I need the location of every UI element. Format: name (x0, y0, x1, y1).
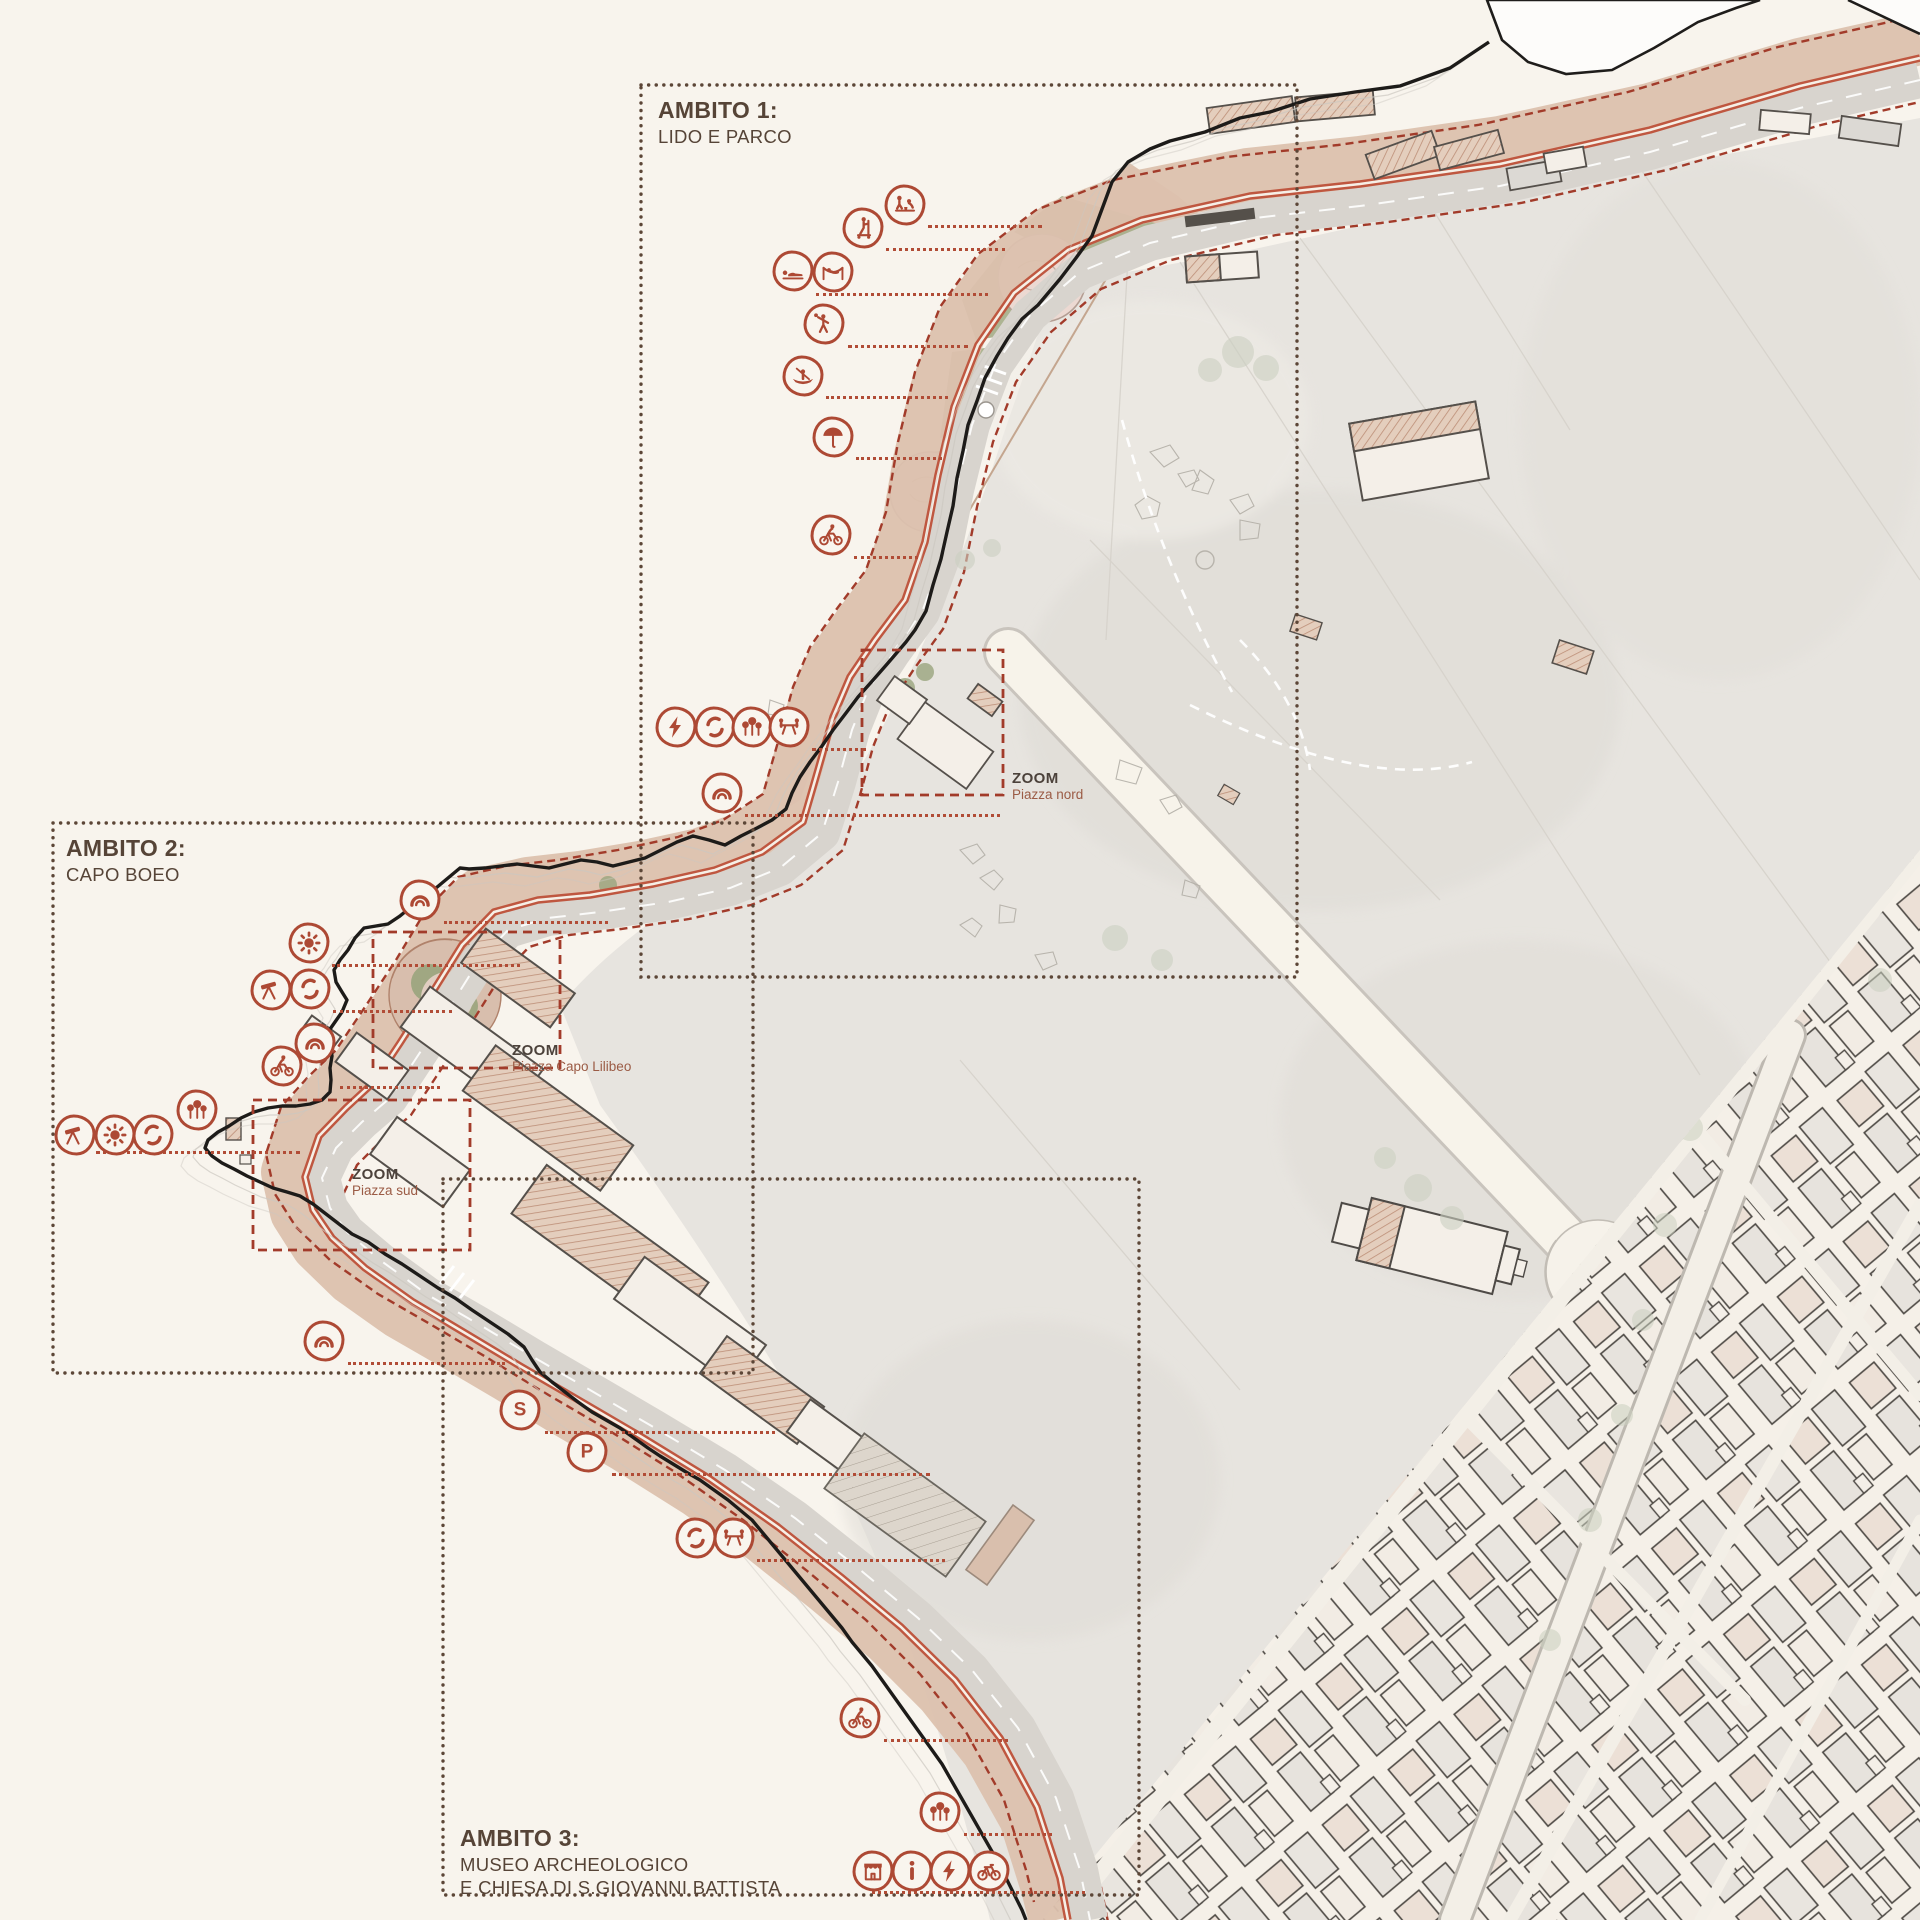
zoom-callout-piazza-sud: ZOOM Piazza sud (352, 1166, 418, 1199)
icon-shuttle-stop: S (500, 1390, 541, 1431)
zoom-callout-title: ZOOM (512, 1042, 631, 1059)
zoom-callout-title: ZOOM (352, 1166, 418, 1183)
leader-line (886, 248, 1005, 251)
icon-panoramic-arch (304, 1321, 345, 1362)
icon-parking: P (567, 1432, 608, 1473)
icon-sun-solarium (95, 1115, 136, 1156)
zoom-callout-name: Piazza Capo Lilibeo (512, 1059, 631, 1075)
icon-loop-path (133, 1115, 174, 1156)
icon-panoramic-arch (400, 880, 441, 921)
icon-beach-games (804, 304, 845, 345)
leader-line (348, 1362, 505, 1365)
icon-canoe (783, 356, 824, 397)
leader-line (444, 921, 608, 924)
zone-title: AMBITO 1: (658, 96, 792, 125)
icon-sunbathing (773, 251, 814, 292)
icon-park-trees (177, 1090, 218, 1131)
leader-line (848, 345, 968, 348)
zone-label-ambito-2: AMBITO 2: CAPO BOEO (66, 834, 186, 886)
leader-line (332, 964, 520, 967)
icon-cycling (262, 1046, 303, 1087)
leader-line (854, 556, 918, 559)
leader-line (884, 1739, 1008, 1742)
icon-telescope-viewpoint (251, 970, 292, 1011)
zoom-callout-piazza-nord: ZOOM Piazza nord (1012, 770, 1083, 803)
zone-subtitle-2: E CHIESA DI S.GIOVANNI BATTISTA (460, 1876, 781, 1899)
leader-line (856, 457, 942, 460)
icon-hammock (813, 252, 854, 293)
icon-picnic-area (769, 707, 810, 748)
zone-title: AMBITO 2: (66, 834, 186, 863)
icon-picnic-area (714, 1518, 755, 1559)
icon-loop-path (695, 707, 736, 748)
icon-electric-charge (656, 707, 697, 748)
icon-park-trees (920, 1792, 961, 1833)
zone-subtitle: MUSEO ARCHEOLOGICO (460, 1853, 781, 1876)
leader-line (812, 748, 866, 751)
leader-line (964, 1833, 1052, 1836)
basemap (0, 0, 1920, 1920)
zone-subtitle: LIDO E PARCO (658, 125, 792, 148)
leader-line (872, 1891, 1085, 1894)
icon-bike-rental (969, 1851, 1010, 1892)
icon-electric-charge (930, 1851, 971, 1892)
icon-sun-solarium (289, 923, 330, 964)
zoom-callout-name: Piazza nord (1012, 787, 1083, 803)
icon-kick-scooter (843, 208, 884, 249)
icon-beach-umbrella (813, 417, 854, 458)
icon-panoramic-arch (702, 773, 743, 814)
leader-line (757, 1559, 945, 1562)
icon-loop-path (676, 1518, 717, 1559)
leader-line (816, 293, 988, 296)
masterplan-canvas: SP AMBITO 1: LIDO E PARCO AMBITO 2: CAPO… (0, 0, 1920, 1920)
leader-line (745, 814, 1000, 817)
leader-line (612, 1473, 930, 1476)
zoom-callout-name: Piazza sud (352, 1183, 418, 1199)
leader-line (333, 1010, 452, 1013)
zoom-callout-piazza-capo-lilibeo: ZOOM Piazza Capo Lilibeo (512, 1042, 631, 1075)
leader-line (340, 1086, 440, 1089)
icon-telescope-viewpoint (55, 1115, 96, 1156)
icon-sandcastle-play (885, 185, 926, 226)
zone-title: AMBITO 3: (460, 1824, 781, 1853)
leader-line (928, 225, 1042, 228)
zone-label-ambito-1: AMBITO 1: LIDO E PARCO (658, 96, 792, 148)
icon-cycling (811, 515, 852, 556)
icon-cycling (840, 1698, 881, 1739)
zoom-callout-title: ZOOM (1012, 770, 1083, 787)
leader-line (826, 396, 948, 399)
zone-label-ambito-3: AMBITO 3: MUSEO ARCHEOLOGICO E CHIESA DI… (460, 1824, 781, 1899)
icon-kiosk (853, 1851, 894, 1892)
icon-info-point (892, 1851, 933, 1892)
icon-park-trees (732, 707, 773, 748)
icon-loop-path (290, 969, 331, 1010)
zone-subtitle: CAPO BOEO (66, 863, 186, 886)
